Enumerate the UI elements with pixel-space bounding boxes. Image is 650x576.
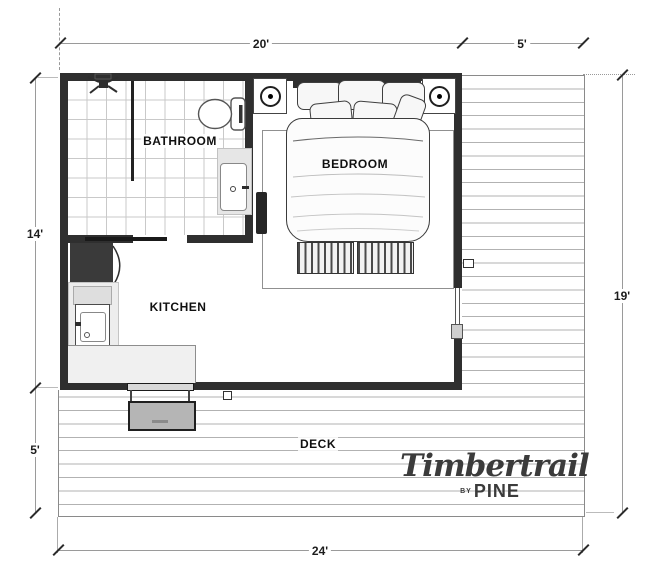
wall-bottom-right	[192, 382, 462, 390]
glass-door-handle	[451, 324, 463, 339]
dimension-label-top-width: 20'	[250, 37, 272, 51]
exterior-light-fixture	[463, 259, 474, 268]
refrigerator	[70, 243, 113, 282]
wall-heater	[256, 192, 267, 234]
bed-bench-right	[357, 242, 414, 274]
kitchen-counter-bottom	[68, 345, 196, 383]
bathroom-sliding-door	[85, 237, 167, 241]
wall-left	[60, 73, 68, 390]
dimension-label-left-deck: 5'	[27, 443, 43, 457]
dimension-label-left-height: 14'	[24, 227, 46, 241]
patio-sliding-door	[127, 383, 194, 391]
duvet-texture	[287, 119, 429, 241]
dimension-label-bottom-width: 24'	[309, 544, 331, 558]
bathroom-label: BATHROOM	[141, 134, 219, 148]
kitchen-cooktop	[73, 286, 112, 305]
lamp-dot	[437, 94, 442, 99]
extension-line-top-right	[583, 74, 635, 75]
shower-glass-panel	[131, 81, 134, 181]
deck-label: DECK	[298, 437, 338, 451]
shower-head-icon	[84, 72, 122, 97]
kitchen-faucet-icon	[75, 322, 81, 326]
brand-logo: Timbertrail BY PINE	[400, 450, 580, 502]
wall-bathroom-bottom-right	[187, 235, 253, 243]
extension-line-left-upper	[38, 77, 58, 78]
wall-bottom-left	[60, 382, 127, 390]
bed-duvet	[286, 118, 430, 242]
logo-by-label: BY	[460, 488, 472, 495]
extension-line-top-left	[59, 8, 60, 70]
dimension-line-top	[60, 43, 583, 44]
deck-light-fixture	[223, 391, 232, 400]
bedside-lamp-right-icon	[429, 86, 450, 107]
bathroom-faucet-icon	[242, 186, 249, 189]
dimension-label-top-deck: 5'	[514, 37, 530, 51]
entry-step-handle	[152, 420, 168, 423]
toilet-icon	[196, 95, 248, 135]
kitchen-label: KITCHEN	[148, 300, 209, 314]
floor-plan-canvas: BATHROOM BEDROOM KITCHEN DECK 20' 5' 14'…	[0, 0, 650, 576]
lamp-dot	[268, 94, 273, 99]
bedside-lamp-left-icon	[260, 86, 281, 107]
entry-step	[128, 401, 196, 431]
glass-door-cap-bottom	[454, 339, 462, 345]
dimension-label-right-height: 19'	[611, 289, 633, 303]
bedroom-label: BEDROOM	[320, 157, 390, 171]
kitchen-sink-basin	[80, 312, 106, 342]
bed-bench-left	[297, 242, 354, 274]
brand-name: Timbertrail	[400, 450, 580, 483]
bathroom-sink-drain	[230, 186, 236, 192]
door-swing-arc	[110, 244, 128, 286]
extension-line-left-mid	[38, 387, 58, 388]
glass-door-cap-top	[454, 282, 462, 288]
logo-maker-name: PINE	[474, 481, 520, 502]
kitchen-sink-drain	[84, 332, 90, 338]
extension-line-right-lower	[586, 512, 614, 513]
